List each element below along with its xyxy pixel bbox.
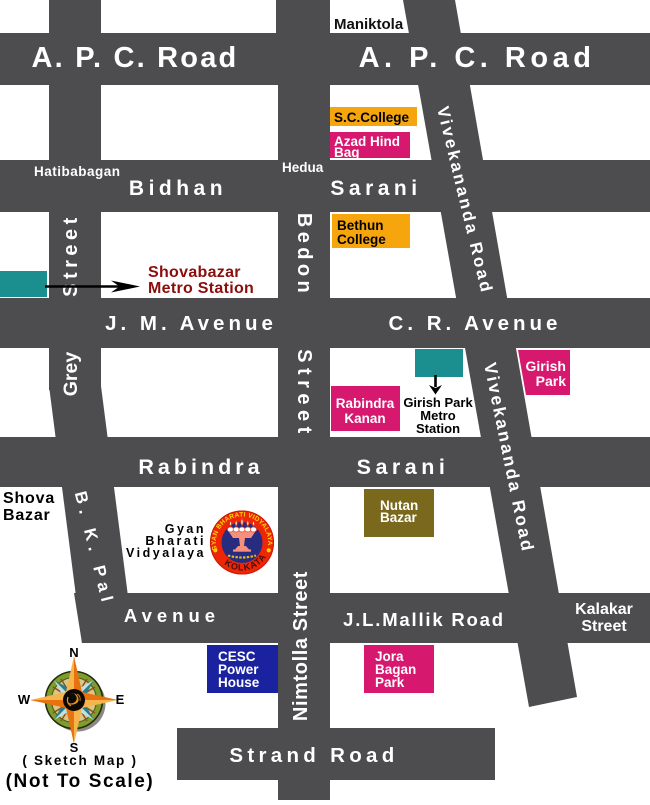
svg-text:( Sketch Map ): ( Sketch Map ) — [22, 753, 137, 768]
svg-text:Vidyalaya: Vidyalaya — [126, 546, 206, 560]
svg-text:J.L.Mallik Road: J.L.Mallik Road — [343, 609, 505, 630]
svg-text:C. R. Avenue: C. R. Avenue — [389, 312, 562, 335]
svg-text:Bazar: Bazar — [3, 507, 51, 524]
svg-text:Kalakar: Kalakar — [575, 601, 633, 618]
svg-text:N: N — [69, 645, 78, 660]
svg-text:Shova: Shova — [3, 490, 55, 507]
svg-text:Bedon: Bedon — [293, 213, 315, 297]
svg-text:W: W — [18, 692, 31, 707]
svg-text:Metro Station: Metro Station — [148, 280, 254, 297]
svg-text:Kanan: Kanan — [344, 411, 385, 426]
svg-text:E: E — [116, 692, 125, 707]
svg-text:Girish: Girish — [526, 358, 566, 374]
svg-text:House: House — [218, 675, 260, 690]
svg-text:Street: Street — [293, 349, 315, 439]
svg-text:Hedua: Hedua — [282, 160, 324, 175]
svg-text:Rabindra: Rabindra — [138, 455, 263, 479]
svg-text:Park: Park — [536, 373, 567, 389]
svg-text:A. P. C. Road: A. P. C. Road — [359, 42, 596, 74]
svg-text:J. M. Avenue: J. M. Avenue — [105, 312, 277, 335]
svg-text:Park: Park — [375, 675, 405, 690]
svg-text:Shovabazar: Shovabazar — [148, 264, 241, 281]
svg-text:A. P. C. Road: A. P. C. Road — [32, 42, 239, 74]
svg-text:Bidhan: Bidhan — [129, 177, 227, 200]
svg-text:Bazar: Bazar — [380, 510, 418, 525]
svg-text:S.C.College: S.C.College — [334, 110, 410, 125]
svg-text:Street: Street — [581, 618, 627, 635]
svg-text:Street: Street — [60, 213, 82, 297]
svg-text:(Not To Scale): (Not To Scale) — [6, 771, 155, 792]
svg-text:Grey: Grey — [60, 352, 82, 397]
svg-text:Station: Station — [416, 421, 460, 436]
svg-text:Sarani: Sarani — [330, 177, 421, 200]
svg-text:Nimtolla Street: Nimtolla Street — [290, 571, 312, 721]
svg-text:Avenue: Avenue — [124, 605, 220, 626]
svg-text:Sarani: Sarani — [357, 455, 450, 479]
svg-text:Strand Road: Strand Road — [229, 744, 398, 767]
svg-text:Hatibabagan: Hatibabagan — [34, 164, 121, 179]
svg-text:College: College — [337, 232, 386, 247]
svg-text:Rabindra: Rabindra — [336, 396, 395, 411]
svg-text:Maniktola: Maniktola — [334, 16, 404, 33]
svg-text:Bag: Bag — [334, 145, 360, 160]
svg-text:Bethun: Bethun — [337, 218, 384, 233]
